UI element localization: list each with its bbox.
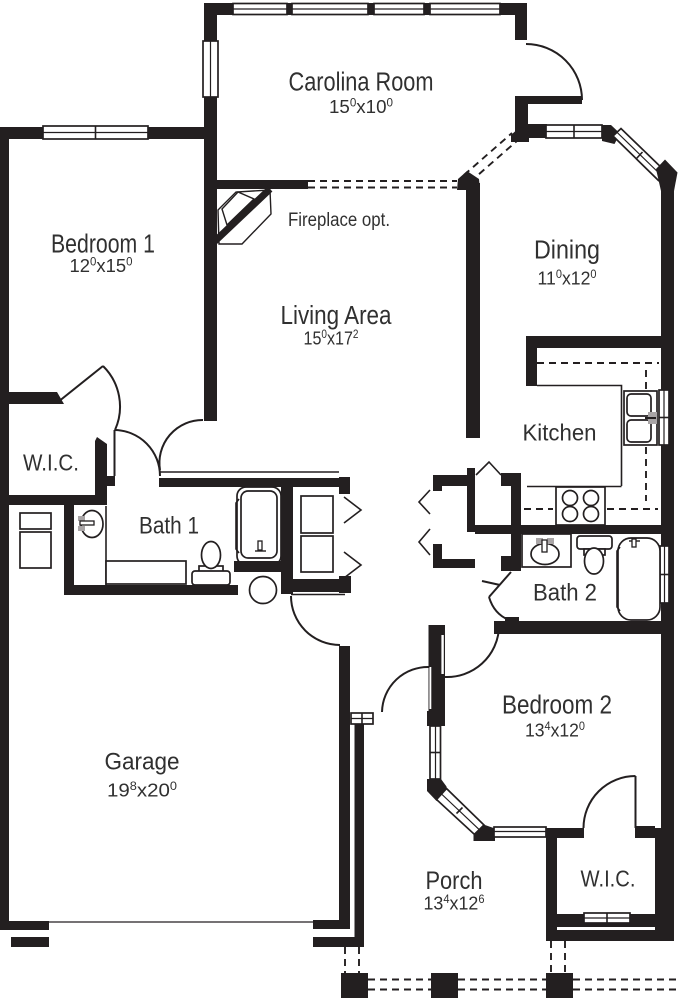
svg-text:W.I.C.: W.I.C. [581, 866, 636, 892]
svg-text:Garage: Garage [105, 749, 180, 776]
svg-text:120x150: 120x150 [70, 255, 133, 276]
svg-text:Bath 1: Bath 1 [139, 513, 199, 540]
svg-text:Fireplace opt.: Fireplace opt. [288, 210, 390, 231]
svg-text:Bedroom 2: Bedroom 2 [502, 692, 612, 720]
svg-text:Carolina Room: Carolina Room [289, 69, 434, 97]
svg-text:150x172: 150x172 [304, 328, 359, 349]
svg-text:Porch: Porch [426, 867, 483, 895]
svg-text:110x120: 110x120 [538, 268, 597, 289]
svg-text:198x200: 198x200 [107, 780, 177, 801]
svg-text:150x100: 150x100 [329, 96, 393, 117]
svg-text:Kitchen: Kitchen [523, 420, 597, 446]
svg-text:W.I.C.: W.I.C. [23, 450, 79, 476]
svg-text:Bath 2: Bath 2 [533, 580, 597, 607]
svg-text:134x126: 134x126 [424, 893, 485, 914]
svg-text:134x120: 134x120 [525, 720, 585, 741]
svg-text:Dining: Dining [534, 237, 600, 265]
svg-text:Living Area: Living Area [281, 302, 393, 330]
